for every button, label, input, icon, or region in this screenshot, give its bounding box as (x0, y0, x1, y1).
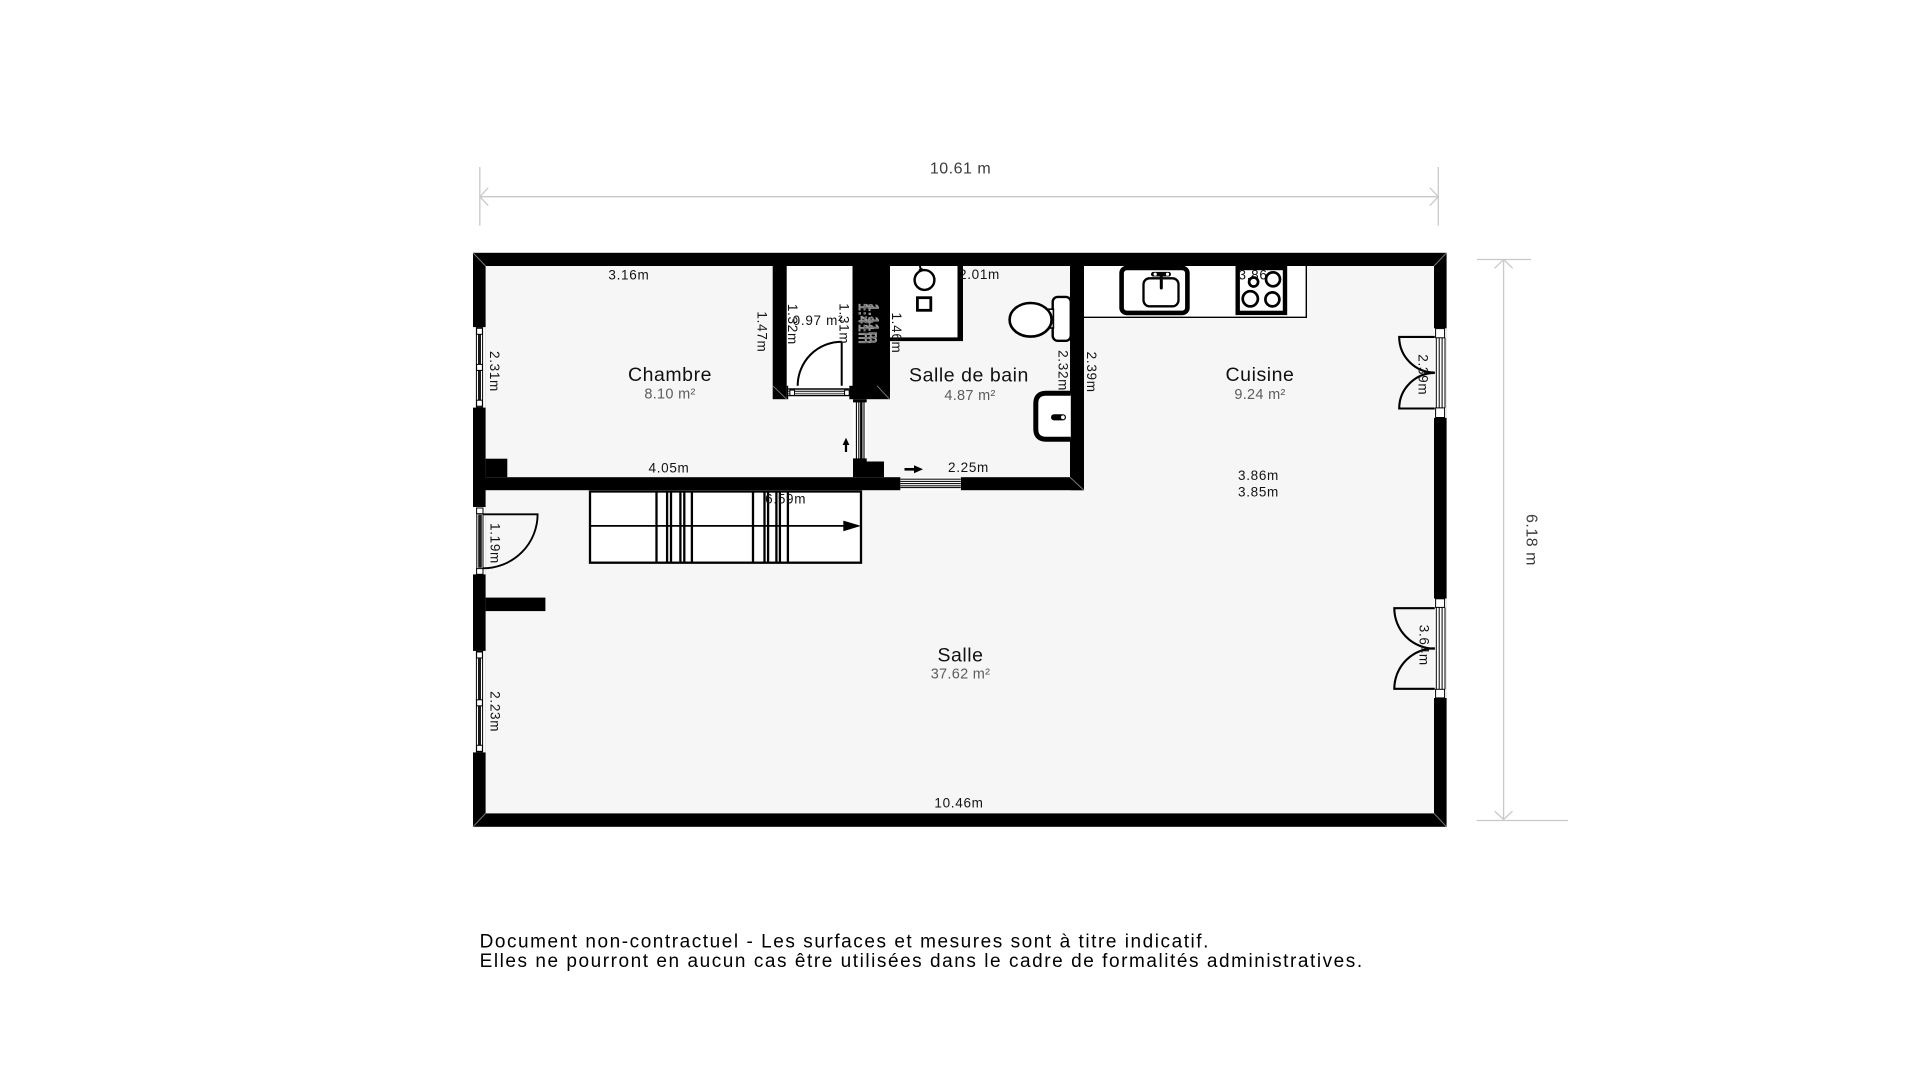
svg-text:10.46m: 10.46m (934, 796, 983, 811)
svg-text:Elles ne pourront en aucun cas: Elles ne pourront en aucun cas être util… (480, 951, 1364, 972)
svg-text:3.64m: 3.64m (1417, 625, 1432, 666)
svg-text:1.19m: 1.19m (487, 523, 502, 564)
svg-text:Salle de bain: Salle de bain (909, 365, 1029, 387)
svg-text:3.85m: 3.85m (1238, 485, 1279, 500)
svg-text:Chambre: Chambre (628, 364, 712, 386)
svg-text:37.62 m²: 37.62 m² (931, 667, 991, 683)
svg-text:Salle: Salle (937, 645, 983, 667)
svg-text:2.39m: 2.39m (1084, 352, 1099, 393)
svg-text:1.31m: 1.31m (836, 303, 851, 344)
svg-text:2.01m: 2.01m (959, 267, 1000, 282)
svg-text:10.61 m: 10.61 m (930, 161, 991, 178)
svg-text:4.05m: 4.05m (648, 460, 689, 475)
svg-text:3.16m: 3.16m (608, 268, 649, 283)
svg-text:1.47m: 1.47m (754, 311, 769, 352)
svg-text:3.86m: 3.86m (1238, 468, 1279, 483)
svg-text:2.32m: 2.32m (1055, 350, 1070, 391)
svg-text:9.24 m²: 9.24 m² (1234, 387, 1285, 403)
svg-text:1.11m: 1.11m (866, 304, 881, 344)
svg-text:Cuisine: Cuisine (1226, 364, 1295, 386)
svg-text:Document non-contractuel - Les: Document non-contractuel - Les surfaces … (480, 931, 1210, 952)
svg-text:8.10 m²: 8.10 m² (644, 387, 695, 403)
svg-text:1.46m: 1.46m (889, 312, 904, 353)
svg-text:6.59m: 6.59m (765, 492, 806, 507)
svg-text:6.18 m: 6.18 m (1523, 514, 1540, 566)
svg-text:1.32m: 1.32m (785, 304, 800, 345)
svg-text:2.23m: 2.23m (488, 691, 503, 732)
svg-text:2.25m: 2.25m (948, 460, 989, 475)
svg-text:2.31m: 2.31m (487, 351, 502, 392)
svg-text:4.87 m²: 4.87 m² (944, 388, 995, 404)
svg-text:2.39m: 2.39m (1416, 354, 1431, 395)
